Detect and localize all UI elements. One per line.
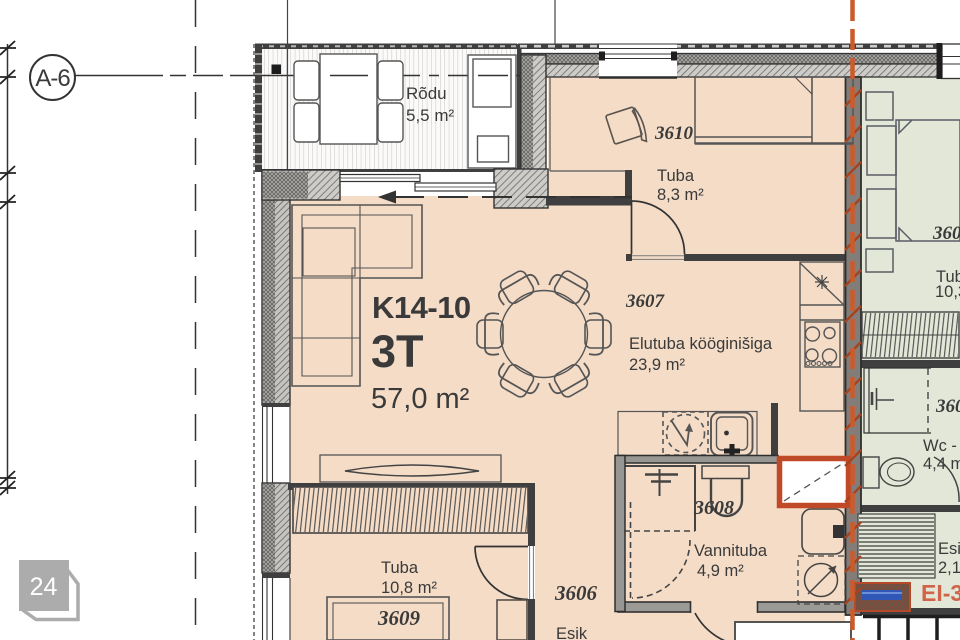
svg-text:A-6: A-6 [35,65,70,92]
svg-text:Wc - d: Wc - d [923,437,960,455]
svg-text:4,4 m²: 4,4 m² [923,455,960,473]
svg-text:Tuba: Tuba [381,559,419,577]
svg-text:4,9 m²: 4,9 m² [697,562,744,580]
svg-text:3609: 3609 [377,606,421,630]
svg-text:24: 24 [30,573,58,601]
svg-text:EI-30: EI-30 [921,580,960,606]
svg-text:57,0 m²: 57,0 m² [371,383,470,415]
svg-text:8,3 m²: 8,3 m² [657,186,704,204]
svg-text:2,1 m: 2,1 m [938,559,960,577]
svg-text:Vannituba: Vannituba [694,542,768,560]
svg-text:K14-10: K14-10 [372,290,471,325]
svg-text:10,3 m: 10,3 m [935,283,960,301]
svg-text:3610: 3610 [654,123,694,144]
svg-text:Elutuba kööginišiga: Elutuba kööginišiga [629,335,773,353]
svg-text:3606: 3606 [554,581,598,605]
svg-text:10,8 m²: 10,8 m² [381,579,437,597]
svg-text:5,5 m²: 5,5 m² [406,106,455,125]
svg-text:Esik: Esik [938,540,960,558]
svg-text:3607: 3607 [625,291,666,312]
svg-text:3T: 3T [371,326,424,377]
svg-text:Esik: Esik [556,625,588,640]
svg-text:23,9 m²: 23,9 m² [629,356,685,374]
svg-text:Tuba: Tuba [657,167,695,185]
svg-text:Rõdu: Rõdu [406,84,447,103]
svg-text:3608: 3608 [693,497,734,519]
svg-text:3607: 3607 [935,396,960,417]
svg-text:3608: 3608 [932,223,960,244]
